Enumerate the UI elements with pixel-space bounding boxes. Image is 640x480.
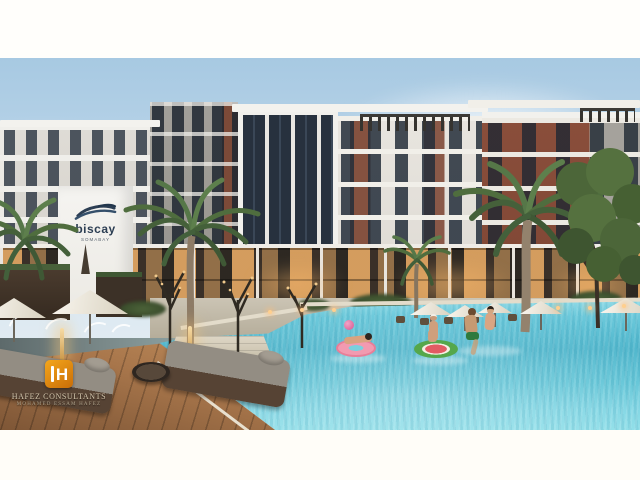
rooftop-pergola bbox=[580, 108, 635, 122]
roof-parapet bbox=[232, 104, 488, 112]
path-light bbox=[588, 306, 592, 310]
path-light bbox=[556, 306, 560, 310]
seated-woman bbox=[484, 313, 495, 331]
palm-tree-small bbox=[382, 230, 452, 320]
roof-parapet bbox=[0, 120, 160, 127]
standing-swimmer-head bbox=[430, 314, 437, 321]
standing-swimmer bbox=[429, 321, 438, 341]
logo-bar bbox=[51, 366, 54, 382]
palm-tree-left-edge bbox=[0, 186, 80, 296]
project-name: biscay bbox=[75, 222, 115, 236]
consultant-person-name: MOHAMED ESSAM HAFEZ bbox=[0, 402, 118, 407]
consultant-firm-name: HAFEZ CONSULTANTS bbox=[0, 392, 118, 401]
roof-parapet bbox=[468, 100, 640, 108]
beach-ball bbox=[344, 320, 354, 330]
watermelon-float bbox=[414, 340, 458, 358]
umbrella-pole bbox=[625, 313, 627, 331]
wave-logo-icon bbox=[74, 202, 118, 220]
umbrella-pole bbox=[13, 318, 15, 342]
letterbox-top bbox=[0, 0, 640, 58]
consultant-logo: H bbox=[45, 360, 73, 388]
path-light bbox=[300, 308, 304, 312]
deck-lamp bbox=[60, 328, 64, 362]
path-light bbox=[268, 310, 272, 314]
umbrella-pole bbox=[540, 314, 542, 330]
path-light bbox=[332, 308, 336, 312]
path-light bbox=[622, 304, 626, 308]
consultant-watermark: H HAFEZ CONSULTANTS MOHAMED ESSAM HAFEZ bbox=[0, 360, 118, 407]
rendering-frame: biscay SOMABAY bbox=[0, 0, 640, 480]
palm-tree-center bbox=[118, 140, 268, 360]
woman-on-float-head bbox=[365, 333, 372, 340]
project-tagline: SOMABAY bbox=[81, 237, 110, 242]
side-table bbox=[132, 362, 170, 382]
water-ripple bbox=[458, 346, 522, 356]
umbrella-pole bbox=[89, 314, 91, 344]
letterbox-bottom bbox=[0, 430, 640, 480]
rooftop-pergola bbox=[360, 114, 470, 131]
logo-monogram: H bbox=[56, 366, 68, 383]
